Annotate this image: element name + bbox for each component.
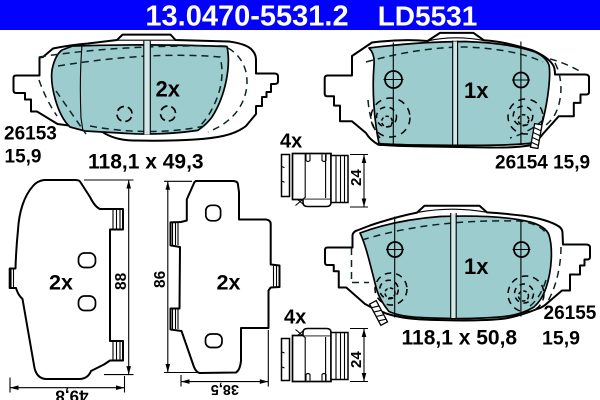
svg-text:88: 88 xyxy=(113,272,130,290)
svg-text:26154 15,9: 26154 15,9 xyxy=(495,153,590,174)
svg-text:118,1 x 50,8: 118,1 x 50,8 xyxy=(402,327,518,350)
svg-text:49,8: 49,8 xyxy=(55,386,88,400)
svg-text:38,5: 38,5 xyxy=(211,381,239,397)
svg-text:1x: 1x xyxy=(464,78,489,103)
svg-text:4x: 4x xyxy=(280,131,302,153)
svg-text:4x: 4x xyxy=(284,307,306,329)
svg-text:2x: 2x xyxy=(49,271,73,295)
svg-text:118,1 x 49,3: 118,1 x 49,3 xyxy=(88,151,204,174)
svg-text:15,9: 15,9 xyxy=(542,328,580,350)
svg-text:1x: 1x xyxy=(464,254,489,279)
svg-text:13.0470-5531.2: 13.0470-5531.2 xyxy=(145,1,348,33)
svg-text:26153: 26153 xyxy=(4,124,57,145)
svg-text:LD5531: LD5531 xyxy=(378,1,478,32)
svg-text:26155: 26155 xyxy=(544,303,597,324)
svg-text:24: 24 xyxy=(348,169,365,186)
svg-text:24: 24 xyxy=(348,351,365,368)
svg-text:15,9: 15,9 xyxy=(5,147,42,168)
svg-text:2x: 2x xyxy=(156,77,181,102)
svg-text:86: 86 xyxy=(152,270,169,288)
svg-text:2x: 2x xyxy=(217,271,241,295)
